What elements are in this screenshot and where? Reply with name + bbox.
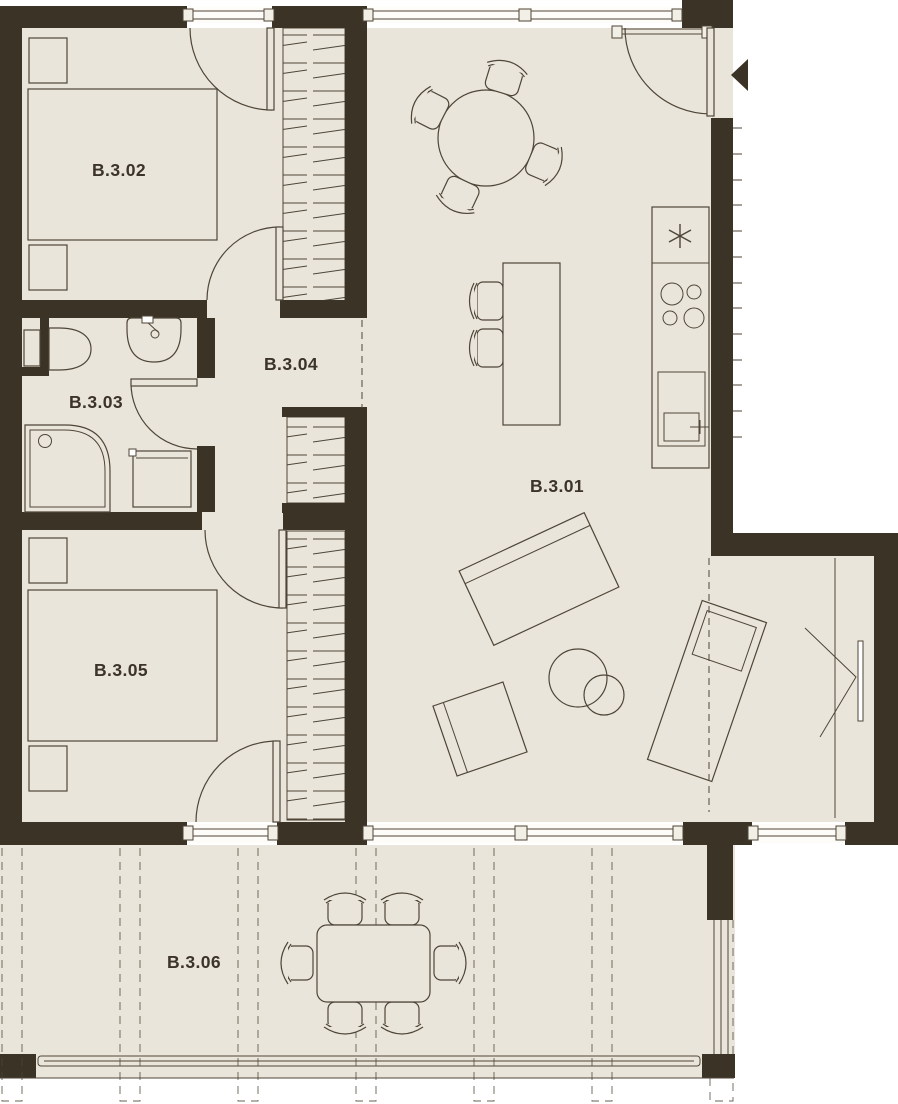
- washing-machine-icon: [129, 449, 191, 507]
- toilet-icon: [24, 328, 91, 370]
- room-label-living: B.3.01: [530, 476, 584, 496]
- entrance-arrow-icon: [731, 59, 748, 91]
- wardrobes: [283, 28, 345, 820]
- outdoor-chair-icon: [324, 893, 366, 925]
- wardrobe-hatch-icon: [287, 417, 345, 503]
- window-icon: [183, 7, 274, 23]
- round-dining-table-icon: [438, 90, 534, 186]
- room-label-hallway: B.3.04: [264, 354, 318, 374]
- nightstand-icon: [29, 245, 67, 290]
- bar-counter-icon: [503, 263, 560, 425]
- window-icon: [183, 824, 278, 843]
- wardrobe-hatch-icon: [287, 531, 345, 820]
- facade-tick-marks: [733, 128, 742, 437]
- nightstand-icon: [29, 38, 67, 83]
- nightstand-icon: [29, 746, 67, 791]
- outdoor-chair-icon: [281, 942, 313, 984]
- outdoor-chair-icon: [381, 893, 423, 925]
- shower-icon: [25, 425, 110, 512]
- nightstand-icon: [29, 538, 67, 583]
- entry-niche-floor: [712, 28, 733, 120]
- window-icon: [748, 824, 846, 843]
- window-icon: [363, 824, 683, 843]
- room-label-bedroom-2: B.3.05: [94, 660, 148, 680]
- room-label-terrace: B.3.06: [167, 952, 221, 972]
- floor-plan-page: B.3.01 B.3.02 B.3.03 B.3.04 B.3.05 B.3.0…: [0, 0, 898, 1104]
- bar-stool-icon: [470, 329, 504, 367]
- tv-panel-icon: [858, 641, 863, 721]
- outdoor-chair-icon: [381, 1002, 423, 1034]
- outdoor-chair-icon: [434, 942, 466, 984]
- wardrobe-hatch-icon: [283, 28, 345, 302]
- outdoor-dining-table-icon: [317, 925, 430, 1002]
- washbasin-icon: [127, 316, 181, 362]
- bar-stool-icon: [470, 282, 504, 320]
- room-label-bedroom-1: B.3.02: [92, 160, 146, 180]
- window-icon: [363, 7, 682, 23]
- outdoor-chair-icon: [324, 1002, 366, 1034]
- room-label-bathroom: B.3.03: [69, 392, 123, 412]
- floor-plan-drawing: B.3.01 B.3.02 B.3.03 B.3.04 B.3.05 B.3.0…: [0, 0, 898, 1104]
